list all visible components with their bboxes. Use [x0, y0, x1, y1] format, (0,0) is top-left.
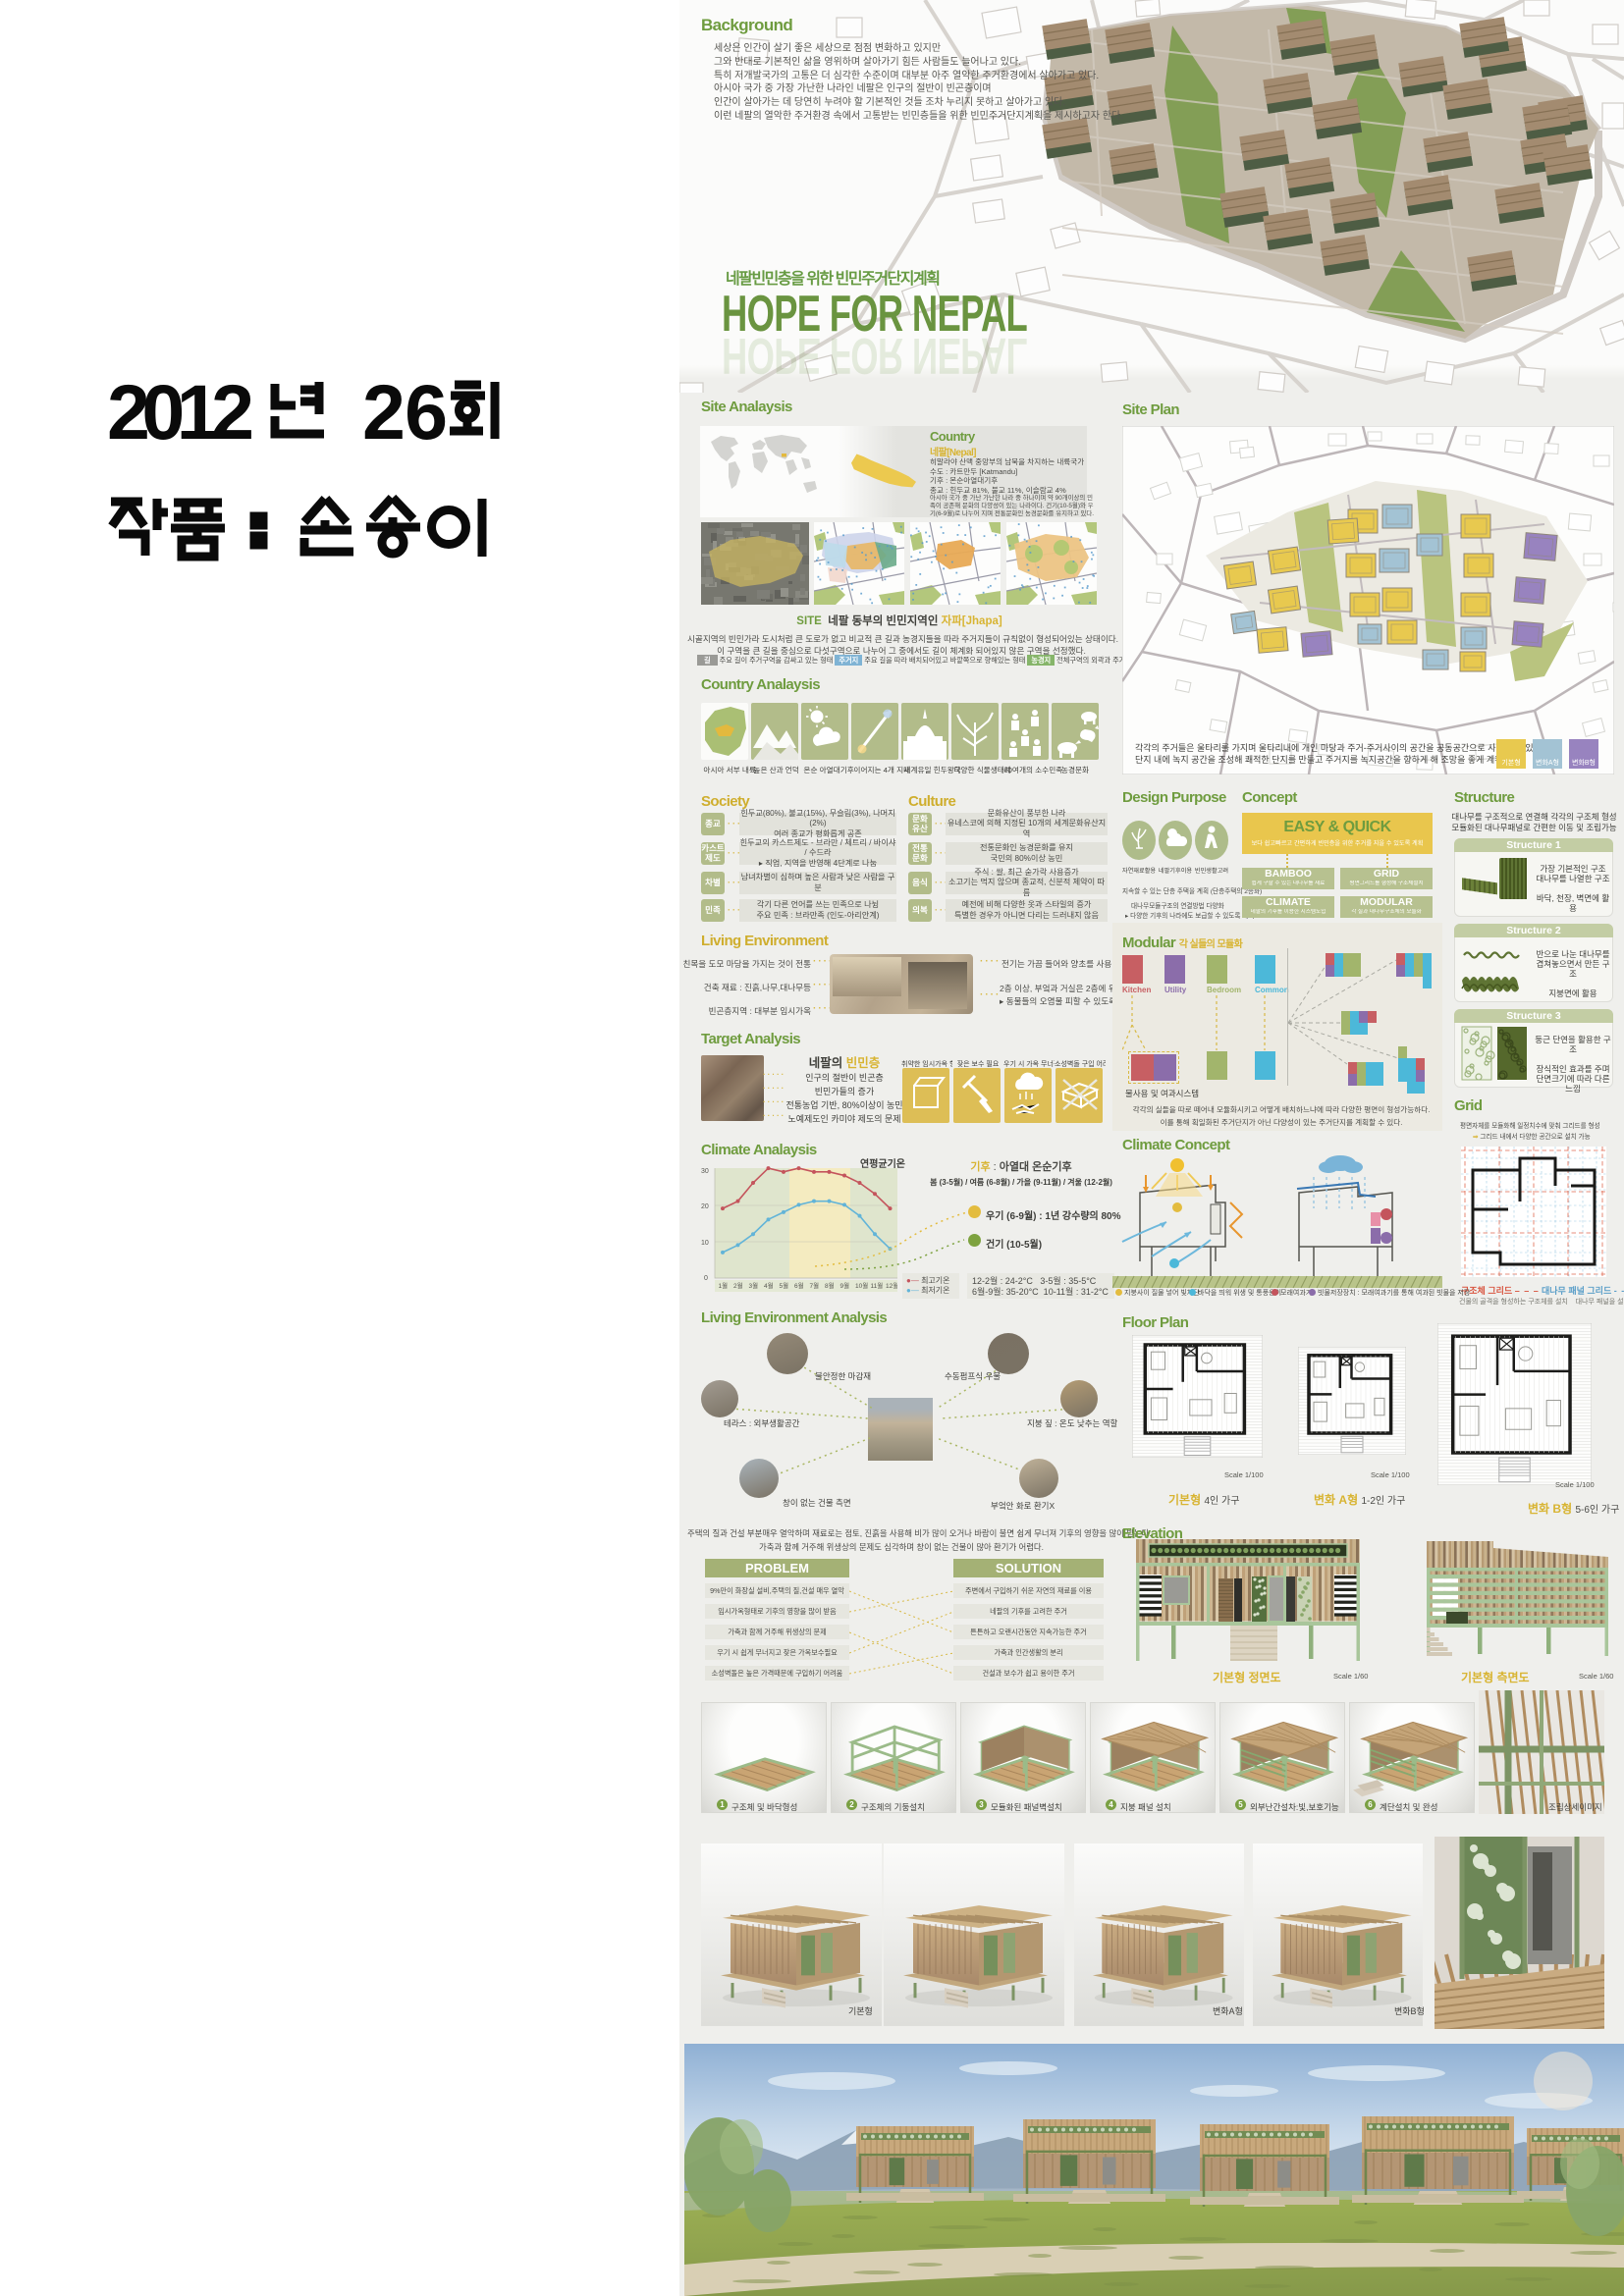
svg-text:20: 20 [701, 1203, 709, 1210]
svg-text:10: 10 [701, 1240, 709, 1247]
svg-text:8월: 8월 [825, 1281, 835, 1290]
svg-text:2012: 2012 [107, 373, 254, 455]
svg-text:3월: 3월 [749, 1281, 759, 1290]
svg-text:2월: 2월 [733, 1281, 743, 1290]
svg-text:12월: 12월 [886, 1281, 897, 1290]
svg-text:30: 30 [701, 1168, 709, 1175]
svg-text:26: 26 [362, 373, 448, 455]
svg-text:5월: 5월 [780, 1281, 789, 1290]
svg-text:1월: 1월 [719, 1281, 729, 1290]
svg-text:4월: 4월 [764, 1281, 774, 1290]
svg-text:0: 0 [704, 1275, 708, 1282]
svg-text:6월: 6월 [794, 1281, 804, 1290]
svg-text:9월: 9월 [840, 1281, 850, 1290]
svg-text:10월: 10월 [855, 1281, 868, 1290]
svg-text:11월: 11월 [871, 1281, 884, 1290]
svg-text:7월: 7월 [810, 1281, 820, 1290]
